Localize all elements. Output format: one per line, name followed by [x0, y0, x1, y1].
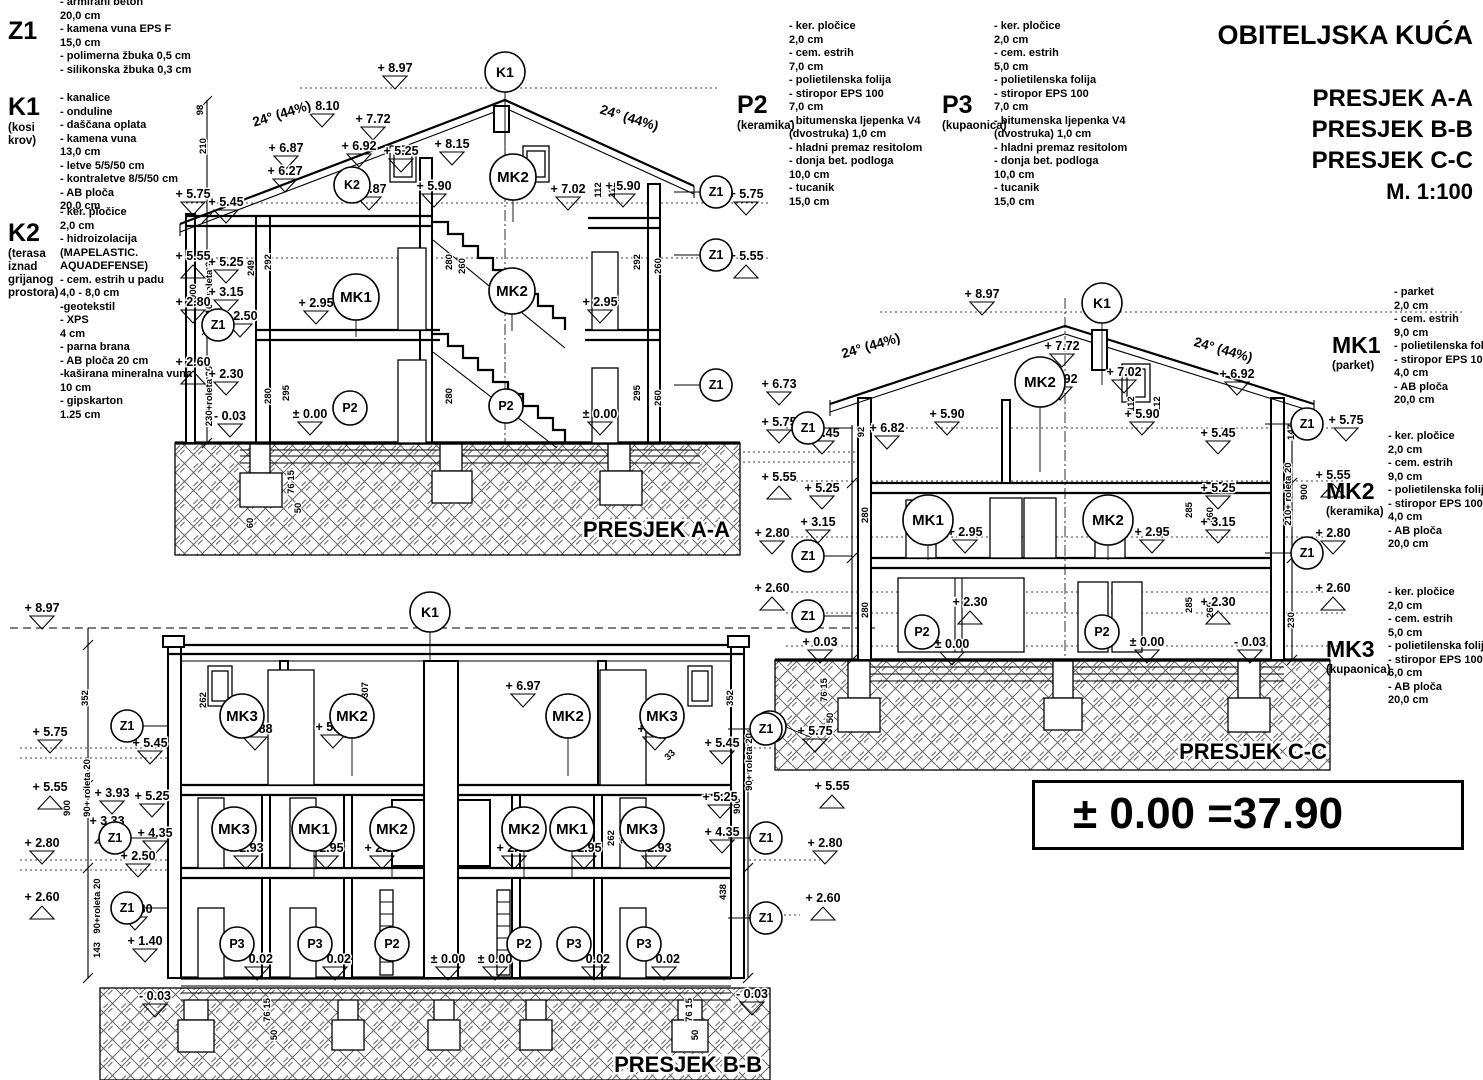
dimension-text: 260 — [653, 390, 664, 406]
text-line: 10,0 cm — [994, 169, 1127, 183]
svg-text:+ 2.95: + 2.95 — [298, 296, 333, 310]
elevation-marker: + 5.45 — [132, 736, 167, 764]
elevation-marker: + 2.80 — [807, 836, 842, 864]
svg-text:± 0.00: ± 0.00 — [935, 637, 970, 651]
legend-code: K2 — [8, 220, 56, 246]
tag-bubble-mk3: MK3 — [220, 694, 264, 738]
dimension-text: 90+roleta 20 — [92, 878, 103, 933]
svg-text:+ 5.25: + 5.25 — [383, 144, 418, 158]
text-line: - XPS — [60, 314, 192, 328]
text-line: 20,0 cm — [1388, 538, 1483, 552]
text-line: - bitumenska ljepenka V4 — [789, 115, 922, 129]
svg-text:Z1: Z1 — [211, 318, 226, 332]
text-line: 10 cm — [60, 382, 192, 396]
elevation-triangle-icon — [30, 906, 54, 919]
text-line: - cem. estrih — [1388, 613, 1483, 627]
elevation-marker: + 5.55 — [814, 779, 849, 808]
dimension-text: 76 15 — [684, 997, 695, 1021]
elevation-marker: + 5.75 — [32, 725, 67, 753]
legend-subtitle: (kupaonica) — [942, 120, 990, 133]
tag-bubble-z1: Z1 — [792, 600, 852, 632]
text-line: - AB ploča — [1388, 681, 1483, 695]
svg-text:MK3: MK3 — [218, 821, 250, 838]
text-line: - cem. estrih — [1388, 457, 1483, 471]
text-line: 4,0 cm — [1388, 511, 1483, 525]
svg-text:± 0.00: ± 0.00 — [478, 952, 513, 966]
text-line: - ker. pločice — [789, 20, 922, 34]
svg-text:Z1: Z1 — [120, 901, 135, 915]
svg-text:MK2: MK2 — [376, 821, 408, 838]
svg-text:+ 2.30: + 2.30 — [1200, 595, 1235, 609]
text-line: - bitumenska ljepenka V4 — [994, 115, 1127, 129]
tag-bubble-mk3: MK3 — [620, 807, 664, 851]
text-line: 2,0 cm — [1388, 444, 1483, 458]
drawing-sheet: { "title_block": { "project": "OBITELJSK… — [0, 0, 1483, 1080]
elevation-marker: + 5.90 — [929, 407, 964, 435]
elevation-triangle-icon — [1225, 382, 1249, 395]
svg-text:+ 5.75: + 5.75 — [175, 187, 210, 201]
svg-text:± 0.00: ± 0.00 — [293, 407, 328, 421]
legend-items: - armirani beton20,0 cm- kamena vuna EPS… — [60, 0, 191, 77]
svg-text:- 0.03: - 0.03 — [736, 987, 768, 1001]
elevation-triangle-icon — [383, 76, 407, 89]
elevation-marker: + 2.80 — [24, 836, 59, 864]
svg-text:+ 2.80: + 2.80 — [754, 526, 789, 540]
elevation-triangle-icon — [214, 270, 238, 283]
section-title: PRESJEK A-A — [583, 517, 730, 542]
roof-pitch-label: 24° (44%) — [251, 98, 313, 130]
svg-text:P2: P2 — [384, 937, 399, 951]
elevation-marker: + 6.82 — [869, 421, 904, 449]
text-line: 9,0 cm — [1388, 471, 1483, 485]
text-line: 7,0 cm — [789, 101, 922, 115]
elevation-marker: + 5.25 — [134, 789, 169, 817]
text-line: - ker. pločice — [60, 206, 192, 220]
tag-bubble-p3: P3 — [557, 927, 591, 961]
tag-bubble-z1: Z1 — [674, 369, 732, 401]
svg-text:+ 6.97: + 6.97 — [505, 679, 540, 693]
dimension-text: 295 — [281, 384, 292, 401]
tag-bubble-k1: K1 — [410, 592, 450, 660]
tag-bubble-p3: P3 — [627, 927, 661, 961]
dimension-text: 352 — [80, 690, 91, 706]
text-line: - kontraletve 8/5/50 cm — [60, 173, 178, 187]
text-line: 5,0 cm — [1388, 627, 1483, 641]
svg-text:MK2: MK2 — [336, 708, 368, 725]
elevation-triangle-icon — [875, 436, 899, 449]
text-line: 2,0 cm — [60, 220, 192, 234]
dimension-text: 50 — [690, 1030, 701, 1041]
svg-text:+ 4.35: + 4.35 — [704, 825, 739, 839]
title-block: OBITELJSKA KUĆA PRESJEK A-APRESJEK B-BPR… — [1217, 20, 1473, 207]
tag-bubble-p2: P2 — [507, 927, 541, 961]
elevation-marker: + 2.60 — [805, 891, 840, 920]
svg-text:+ 5.45: + 5.45 — [704, 736, 739, 750]
svg-text:MK3: MK3 — [226, 708, 258, 725]
text-line: - kamena vuna EPS F — [60, 23, 191, 37]
text-line: - hidroizolacija — [60, 233, 192, 247]
elevation-triangle-icon — [734, 265, 758, 278]
tag-bubble-mk1: MK1 — [333, 274, 379, 337]
dimension-text: 280 — [860, 602, 871, 618]
text-line: - AB ploča 20 cm — [60, 355, 192, 369]
elevation-marker: + 8.97 — [377, 61, 412, 89]
text-line: - stiropor EPS 100 — [789, 88, 922, 102]
scale-label: M. 1:100 — [1217, 176, 1473, 207]
svg-text:+ 8.97: + 8.97 — [377, 61, 412, 75]
svg-text:+ 7.72: + 7.72 — [355, 112, 390, 126]
svg-text:- 0.03: - 0.03 — [139, 989, 171, 1003]
project-title: OBITELJSKA KUĆA — [1217, 20, 1473, 51]
text-line: - polietilenska folija — [1388, 640, 1483, 654]
legend-k1: K1 (kosi krov) - kanalice- onduline- daš… — [8, 92, 178, 214]
elevation-marker: + 7.02 — [550, 182, 585, 210]
legend-subtitle: (terasa iznad grijanog prostora) — [8, 248, 56, 300]
svg-text:P2: P2 — [498, 399, 513, 413]
svg-text:+ 5.55: + 5.55 — [32, 780, 67, 794]
section-title: PRESJEK B-B — [614, 1052, 762, 1077]
elevation-triangle-icon — [126, 864, 150, 877]
elevation-triangle-icon — [1206, 441, 1230, 454]
elevation-marker: + 5.25 — [804, 481, 839, 509]
text-line: 15,0 cm — [789, 196, 922, 210]
elevation-triangle-icon — [1130, 422, 1154, 435]
svg-text:+ 5.45: + 5.45 — [1200, 426, 1235, 440]
legend-items: - ker. pločice2,0 cm- cem. estrih7,0 cm-… — [789, 20, 922, 209]
dimension-text: 76 15 — [262, 997, 273, 1021]
tag-bubble-z1: Z1 — [202, 309, 234, 341]
dimension-text: 230 — [1286, 612, 1297, 628]
elevation-triangle-icon — [38, 796, 62, 809]
elevation-triangle-icon — [767, 392, 791, 405]
tag-bubble-p3: P3 — [298, 927, 332, 961]
legend-code: P3 — [942, 92, 990, 118]
legend-subtitle: (keramika) — [1326, 506, 1384, 519]
roof-pitch-label: 24° (44%) — [840, 330, 902, 361]
elevation-marker: + 2.95 — [298, 296, 333, 324]
legend-p3: P3 (kupaonica) - ker. pločice2,0 cm- cem… — [942, 20, 1127, 209]
tag-bubble-mk2: MK2 — [490, 154, 536, 222]
text-line: - polietilenska folija — [789, 74, 922, 88]
text-line: - polietilenska folija — [994, 74, 1127, 88]
elevation-triangle-icon — [100, 801, 124, 814]
text-line: - stiropor EPS 100 — [994, 88, 1127, 102]
text-line: - kamena vuna — [60, 133, 178, 147]
tag-bubble-p2: P2 — [375, 927, 409, 961]
text-line: - AB ploča — [60, 187, 178, 201]
dimension-text: 285 — [1184, 501, 1195, 518]
text-line: 10,0 cm — [789, 169, 922, 183]
text-line: - ker. pločice — [1388, 586, 1483, 600]
svg-text:- 0.03: - 0.03 — [1234, 635, 1266, 649]
elevation-marker: + 6.73 — [761, 377, 796, 405]
svg-text:MK3: MK3 — [626, 821, 658, 838]
elevation-triangle-icon — [760, 597, 784, 610]
svg-text:+ 5.75: + 5.75 — [1328, 413, 1363, 427]
elevation-triangle-icon — [140, 804, 164, 817]
text-line: PRESJEK B-B — [1217, 114, 1473, 145]
svg-text:Z1: Z1 — [759, 911, 774, 925]
svg-text:+ 7.02: + 7.02 — [1106, 365, 1141, 379]
legend-code: MK2 — [1326, 478, 1384, 504]
text-line: - parket — [1394, 286, 1483, 300]
elevation-triangle-icon — [138, 751, 162, 764]
svg-text:+ 3.15: + 3.15 — [208, 285, 243, 299]
legend-subtitle: (kosi krov) — [8, 122, 56, 148]
dimension-text: 285 — [1184, 596, 1195, 613]
text-line: 1.25 cm — [60, 409, 192, 423]
text-line: AQUADEFENSE) — [60, 260, 192, 274]
elevation-marker: + 6.97 — [505, 679, 540, 707]
legend-items: - kanalice- onduline- daščana oplata- ka… — [60, 92, 178, 214]
svg-text:+ 6.92: + 6.92 — [1219, 367, 1254, 381]
text-line: (MAPELASTIC. — [60, 247, 192, 261]
tag-bubble-mk3: MK3 — [212, 807, 256, 851]
elevation-triangle-icon — [298, 422, 322, 435]
text-line: 4 cm — [60, 328, 192, 342]
text-line: (dvostruka) 1,0 cm — [789, 128, 922, 142]
svg-text:MK2: MK2 — [497, 169, 529, 186]
tag-bubble-p2: P2 — [333, 391, 367, 425]
elevation-triangle-icon — [820, 795, 844, 808]
svg-text:+ 2.30: + 2.30 — [952, 595, 987, 609]
elevation-marker: + 2.80 — [754, 526, 789, 554]
text-line: - polietilenska folija — [1394, 340, 1483, 354]
text-line: - ker. pločice — [1388, 430, 1483, 444]
legend-code: Z1 — [8, 18, 56, 44]
svg-text:+ 7.72: + 7.72 — [1044, 339, 1079, 353]
svg-text:MK1: MK1 — [298, 821, 330, 838]
svg-text:Z1: Z1 — [1300, 417, 1315, 431]
elevation-triangle-icon — [30, 616, 54, 629]
text-line: PRESJEK C-C — [1217, 145, 1473, 176]
svg-text:+ 6.82: + 6.82 — [869, 421, 904, 435]
svg-text:MK2: MK2 — [508, 821, 540, 838]
dimension-text: 292 — [632, 254, 643, 270]
text-line: 2,0 cm — [994, 34, 1127, 48]
elevation-triangle-icon — [953, 540, 977, 553]
svg-text:+ 5.90: + 5.90 — [929, 407, 964, 421]
svg-text:+ 5.55: + 5.55 — [761, 470, 796, 484]
legend-items: - ker. pločice2,0 cm- hidroizolacija(MAP… — [60, 206, 192, 422]
text-line: - gipskarton — [60, 395, 192, 409]
text-line: 15,0 cm — [994, 196, 1127, 210]
elevation-marker: + 6.92 — [341, 139, 376, 167]
text-line: - donja bet. podloga — [789, 155, 922, 169]
svg-text:+ 5.25: + 5.25 — [1200, 481, 1235, 495]
text-line: - letve 5/5/50 cm — [60, 160, 178, 174]
tag-bubble-mk2: MK2 — [546, 694, 590, 776]
tag-bubble-mk2: MK2 — [489, 268, 535, 331]
tag-bubble-k2: K2 — [334, 167, 370, 203]
elevation-marker: + 3.15 — [800, 515, 835, 543]
elevation-triangle-icon — [440, 152, 464, 165]
text-line: - donja bet. podloga — [994, 155, 1127, 169]
text-line: - stiropor EPS 100 — [1388, 498, 1483, 512]
elevation-marker: + 7.72 — [355, 112, 390, 140]
section-aa-geometry — [175, 96, 740, 555]
dimension-text: 210 — [198, 138, 209, 154]
svg-text:Z1: Z1 — [108, 831, 123, 845]
legend-subtitle: (keramika) — [737, 120, 785, 133]
roof-pitch-label: 24° (44%) — [598, 102, 660, 134]
elevation-marker: + 8.15 — [434, 137, 469, 165]
svg-text:+ 7.02: + 7.02 — [550, 182, 585, 196]
text-line: 7,0 cm — [789, 61, 922, 75]
elevation-triangle-icon — [38, 740, 62, 753]
elevation-marker: + 2.95 — [1134, 525, 1169, 553]
text-line: PRESJEK A-A — [1217, 83, 1473, 114]
svg-text:+ 2.60: + 2.60 — [754, 581, 789, 595]
svg-text:+ 2.50: + 2.50 — [120, 849, 155, 863]
svg-text:Z1: Z1 — [801, 421, 816, 435]
dimension-text: 112 — [593, 182, 604, 197]
dimension-text: 280 — [444, 388, 455, 404]
dimension-text: 292 — [263, 254, 274, 270]
dimension-texts: 98210900210+ roleta 20230+roleta 2024929… — [62, 105, 1310, 1041]
text-line: 15,0 cm — [60, 37, 191, 51]
dimension-text: 262 — [606, 830, 617, 846]
text-line: 2,0 cm — [1388, 600, 1483, 614]
text-line: - kanalice — [60, 92, 178, 106]
roof-pitch-label: 24° (44%) — [1192, 334, 1254, 365]
elevation-triangle-icon — [708, 805, 732, 818]
elevation-triangle-icon — [767, 486, 791, 499]
svg-text:+ 5.90: + 5.90 — [1124, 407, 1159, 421]
legend-items: - ker. pločice2,0 cm- cem. estrih9,0 cm-… — [1388, 430, 1483, 552]
tag-bubble-z1: Z1 — [674, 239, 732, 271]
tag-bubble-p3: P3 — [220, 927, 254, 961]
text-line: - hladni premaz resitolom — [789, 142, 922, 156]
dimension-text: 352 — [725, 690, 736, 706]
tag-bubble-z1: Z1 — [792, 540, 852, 572]
svg-text:+ 8.97: + 8.97 — [964, 287, 999, 301]
text-line: - cem. estrih — [1394, 313, 1483, 327]
svg-text:Z1: Z1 — [759, 831, 774, 845]
svg-text:+ 5.55: + 5.55 — [814, 779, 849, 793]
svg-text:Z1: Z1 — [759, 722, 774, 736]
text-line: - stiropor EPS 100 — [1388, 654, 1483, 668]
svg-text:P2: P2 — [914, 625, 929, 639]
svg-text:MK1: MK1 — [556, 821, 588, 838]
elevation-marker: + 3.15 — [1200, 515, 1235, 543]
svg-text:+ 5.25: + 5.25 — [134, 789, 169, 803]
text-line: 13,0 cm — [60, 146, 178, 160]
dimension-text: 438 — [718, 884, 729, 900]
text-line: 2,0 cm — [789, 34, 922, 48]
svg-text:+ 5.75: + 5.75 — [32, 725, 67, 739]
svg-text:Z1: Z1 — [709, 248, 724, 262]
elevation-triangle-icon — [970, 302, 994, 315]
legend-z1: Z1 - armirani beton20,0 cm- kamena vuna … — [8, 0, 191, 77]
dimension-text: 210+ roleta 20 — [1283, 462, 1294, 525]
elevation-marker: + 5.90 — [1124, 407, 1159, 435]
text-line: 2,0 cm — [1394, 300, 1483, 314]
dimension-text: 249 — [246, 260, 257, 276]
text-line: - cem. estrih — [994, 47, 1127, 61]
text-line: - stiropor EPS 100 — [1394, 354, 1483, 368]
dimension-text: 76 15 — [286, 469, 297, 493]
svg-text:MK1: MK1 — [340, 289, 372, 306]
datum-elevation-note: ± 0.00 =37.90 — [1032, 780, 1464, 850]
text-line: - polimerna žbuka 0,5 cm — [60, 50, 191, 64]
elevation-marker: + 5.25 — [1200, 481, 1235, 509]
elevation-marker: + 2.60 — [24, 890, 59, 919]
legend-code: K1 — [8, 94, 56, 120]
text-line: - armirani beton — [60, 0, 191, 10]
svg-text:+ 2.60: + 2.60 — [24, 890, 59, 904]
sheet-section-titles: PRESJEK A-APRESJEK B-BPRESJEK C-C — [1217, 83, 1473, 176]
elevation-marker: ± 0.00 — [293, 407, 328, 435]
svg-text:MK2: MK2 — [552, 708, 584, 725]
elevation-marker: + 3.93 — [94, 786, 129, 814]
svg-text:+ 5.90: + 5.90 — [416, 179, 451, 193]
elevation-triangle-icon — [1206, 530, 1230, 543]
elevation-triangle-icon — [304, 311, 328, 324]
svg-text:+ 2.60: + 2.60 — [805, 891, 840, 905]
svg-text:P2: P2 — [516, 937, 531, 951]
dimension-text: 50 — [269, 1030, 280, 1041]
elevation-marker: + 8.97 — [964, 287, 999, 315]
svg-text:+ 0.03: + 0.03 — [802, 635, 837, 649]
elevation-triangle-icon — [810, 496, 834, 509]
text-line: 9,0 cm — [1394, 327, 1483, 341]
svg-text:Z1: Z1 — [709, 378, 724, 392]
dimension-text: 260 — [457, 258, 468, 274]
dimension-text: 280 — [444, 254, 455, 270]
legend-items: - parket2,0 cm- cem. estrih9,0 cm- polie… — [1394, 286, 1483, 408]
legend-items: - ker. pločice2,0 cm- cem. estrih5,0 cm-… — [1388, 586, 1483, 708]
svg-text:± 0.00: ± 0.00 — [1130, 635, 1165, 649]
svg-text:K1: K1 — [1093, 295, 1111, 311]
svg-text:+ 5.45: + 5.45 — [208, 195, 243, 209]
elevation-triangle-icon — [556, 197, 580, 210]
svg-text:+ 5.90: + 5.90 — [605, 179, 640, 193]
elevation-marker: + 2.95 — [947, 525, 982, 553]
svg-text:+ 5.25: + 5.25 — [702, 790, 737, 804]
tag-bubble-mk2: MK2 — [1015, 357, 1065, 472]
legend-p2: P2 (keramika) - ker. pločice2,0 cm- cem.… — [737, 20, 922, 209]
elevation-triangle-icon — [1206, 496, 1230, 509]
elevation-triangle-icon — [30, 851, 54, 864]
svg-text:+ 2.80: + 2.80 — [24, 836, 59, 850]
tag-bubble-p2: P2 — [489, 389, 523, 423]
svg-text:MK2: MK2 — [1092, 512, 1124, 529]
elevation-triangle-icon — [811, 907, 835, 920]
text-line: 20,0 cm — [1394, 394, 1483, 408]
dimension-text: 50 — [293, 503, 304, 514]
tag-bubble-p2: P2 — [1085, 615, 1119, 649]
dimension-text: 90+ roleta 20 — [82, 759, 93, 817]
svg-text:P3: P3 — [307, 937, 322, 951]
elevation-triangle-icon — [321, 735, 345, 748]
svg-text:+ 3.15: + 3.15 — [1200, 515, 1235, 529]
text-line: 5,0 cm — [994, 61, 1127, 75]
svg-text:± 0.00: ± 0.00 — [431, 952, 466, 966]
svg-text:MK2: MK2 — [496, 283, 528, 300]
elevation-triangle-icon — [813, 851, 837, 864]
text-line: 6,0 cm — [1388, 667, 1483, 681]
svg-text:+ 1.40: + 1.40 — [127, 934, 162, 948]
dimension-text: 60 — [245, 518, 256, 529]
elevation-triangle-icon — [767, 430, 791, 443]
svg-text:+ 3.15: + 3.15 — [800, 515, 835, 529]
dimension-text: 900 — [1299, 484, 1310, 500]
elevation-marker: + 5.55 — [728, 249, 763, 278]
legend-code: MK3 — [1326, 636, 1384, 662]
svg-text:+ 2.80: + 2.80 — [807, 836, 842, 850]
elevation-triangle-icon — [511, 694, 535, 707]
